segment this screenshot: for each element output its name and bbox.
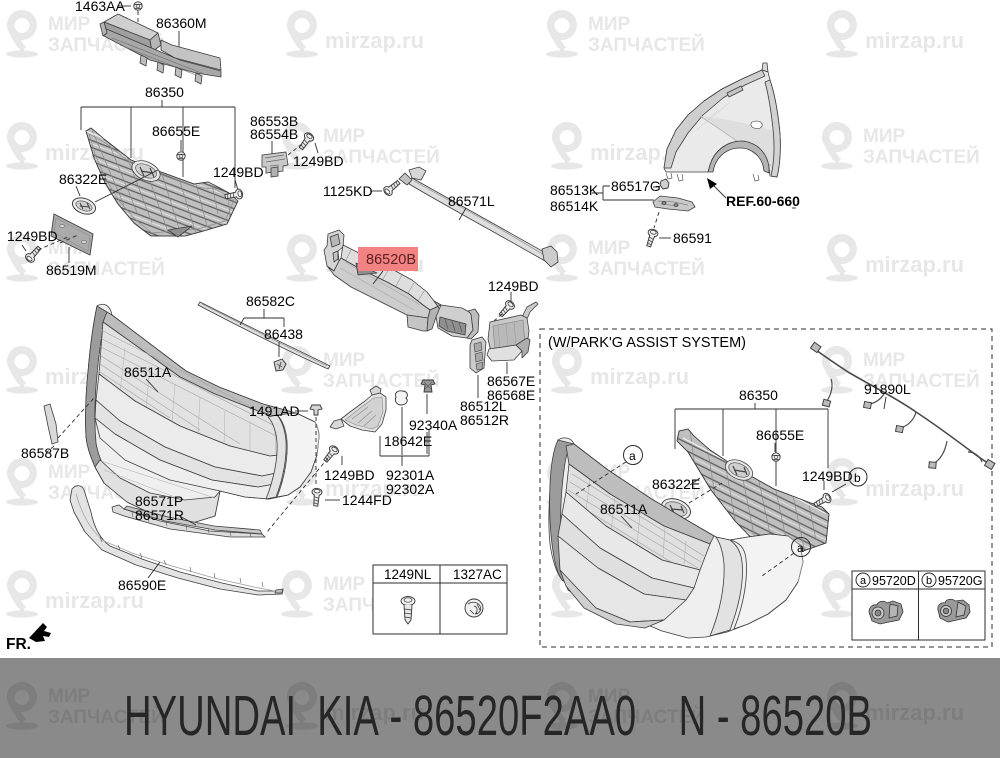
svg-text:a: a [860,575,867,587]
svg-text:1463AA: 1463AA [75,0,125,14]
svg-text:a: a [629,449,636,463]
svg-text:86514K: 86514K [550,198,599,214]
svg-text:86655E: 86655E [756,427,804,443]
svg-text:86350: 86350 [145,84,184,100]
svg-text:86520B: 86520B [366,252,416,268]
svg-text:86322E: 86322E [652,476,700,492]
svg-text:HYUNDAI KIA - 86520F2AA0 N: HYUNDAI KIA - 86520F2AA0 N - 86520B [124,684,872,748]
svg-text:91890L: 91890L [864,381,911,397]
svg-text:86511A: 86511A [124,364,172,380]
svg-text:(W/PARK'G ASSIST SYSTEM): (W/PARK'G ASSIST SYSTEM) [548,335,746,351]
svg-text:1327AC: 1327AC [453,567,502,582]
svg-text:92340A: 92340A [409,417,458,433]
svg-text:86587B: 86587B [21,445,69,461]
svg-text:86655E: 86655E [152,123,200,139]
svg-text:86513K: 86513K [550,182,599,198]
svg-text:1249BD: 1249BD [802,468,853,484]
svg-text:86554B: 86554B [250,126,298,142]
svg-text:86519M: 86519M [46,262,97,278]
svg-text:86571L: 86571L [448,193,495,209]
svg-text:92302A: 92302A [386,481,435,497]
svg-text:b: b [926,575,932,587]
svg-text:95720G: 95720G [938,574,982,588]
svg-text:1249NL: 1249NL [384,567,432,582]
svg-text:FR.: FR. [6,636,31,653]
svg-text:1249BD: 1249BD [488,278,539,294]
svg-text:95720D: 95720D [872,574,916,588]
svg-text:86512R: 86512R [460,412,509,428]
svg-text:1249BD: 1249BD [213,164,264,180]
svg-text:1491AD: 1491AD [249,403,300,419]
svg-text:86350: 86350 [739,387,778,403]
svg-text:18642E: 18642E [384,433,432,449]
svg-text:86571R: 86571R [135,507,184,523]
svg-text:1249BD: 1249BD [324,467,375,483]
svg-text:1244FD: 1244FD [342,492,392,508]
svg-text:REF.60-660: REF.60-660 [726,193,800,209]
svg-text:a: a [797,541,804,555]
svg-text:1125KD: 1125KD [323,183,373,199]
svg-text:86511A: 86511A [600,501,648,517]
svg-text:86517G: 86517G [611,178,661,194]
svg-text:1249BD: 1249BD [293,153,344,169]
svg-text:86360M: 86360M [156,15,207,31]
svg-text:86582C: 86582C [246,293,295,309]
svg-text:1249BD: 1249BD [7,228,58,244]
svg-text:86590E: 86590E [118,577,166,593]
svg-text:b: b [854,471,861,485]
svg-text:86322E: 86322E [59,171,107,187]
svg-text:86591: 86591 [673,230,712,246]
svg-text:86438: 86438 [264,326,303,342]
